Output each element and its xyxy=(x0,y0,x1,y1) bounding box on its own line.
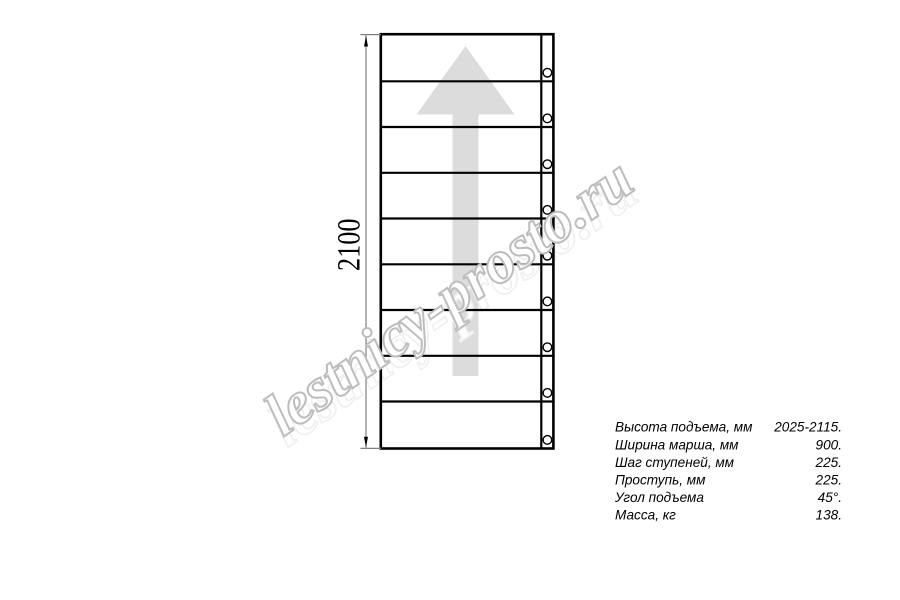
svg-text:138.: 138. xyxy=(816,508,842,523)
svg-text:Угол подъема: Угол подъема xyxy=(614,490,704,505)
svg-text:225.: 225. xyxy=(815,455,842,470)
svg-text:Высота подъема, мм: Высота подъема, мм xyxy=(615,420,753,435)
svg-text:Масса, кг: Масса, кг xyxy=(615,508,676,523)
svg-text:Проступь, мм: Проступь, мм xyxy=(615,473,706,488)
svg-text:225.: 225. xyxy=(815,473,842,488)
svg-text:Ширина марша, мм: Ширина марша, мм xyxy=(615,437,739,452)
svg-text:2025-2115.: 2025-2115. xyxy=(773,420,842,435)
svg-text:Шаг ступеней, мм: Шаг ступеней, мм xyxy=(615,455,735,470)
svg-text:45°.: 45°. xyxy=(818,490,842,505)
svg-text:2100: 2100 xyxy=(331,219,367,272)
svg-text:900.: 900. xyxy=(816,437,842,452)
